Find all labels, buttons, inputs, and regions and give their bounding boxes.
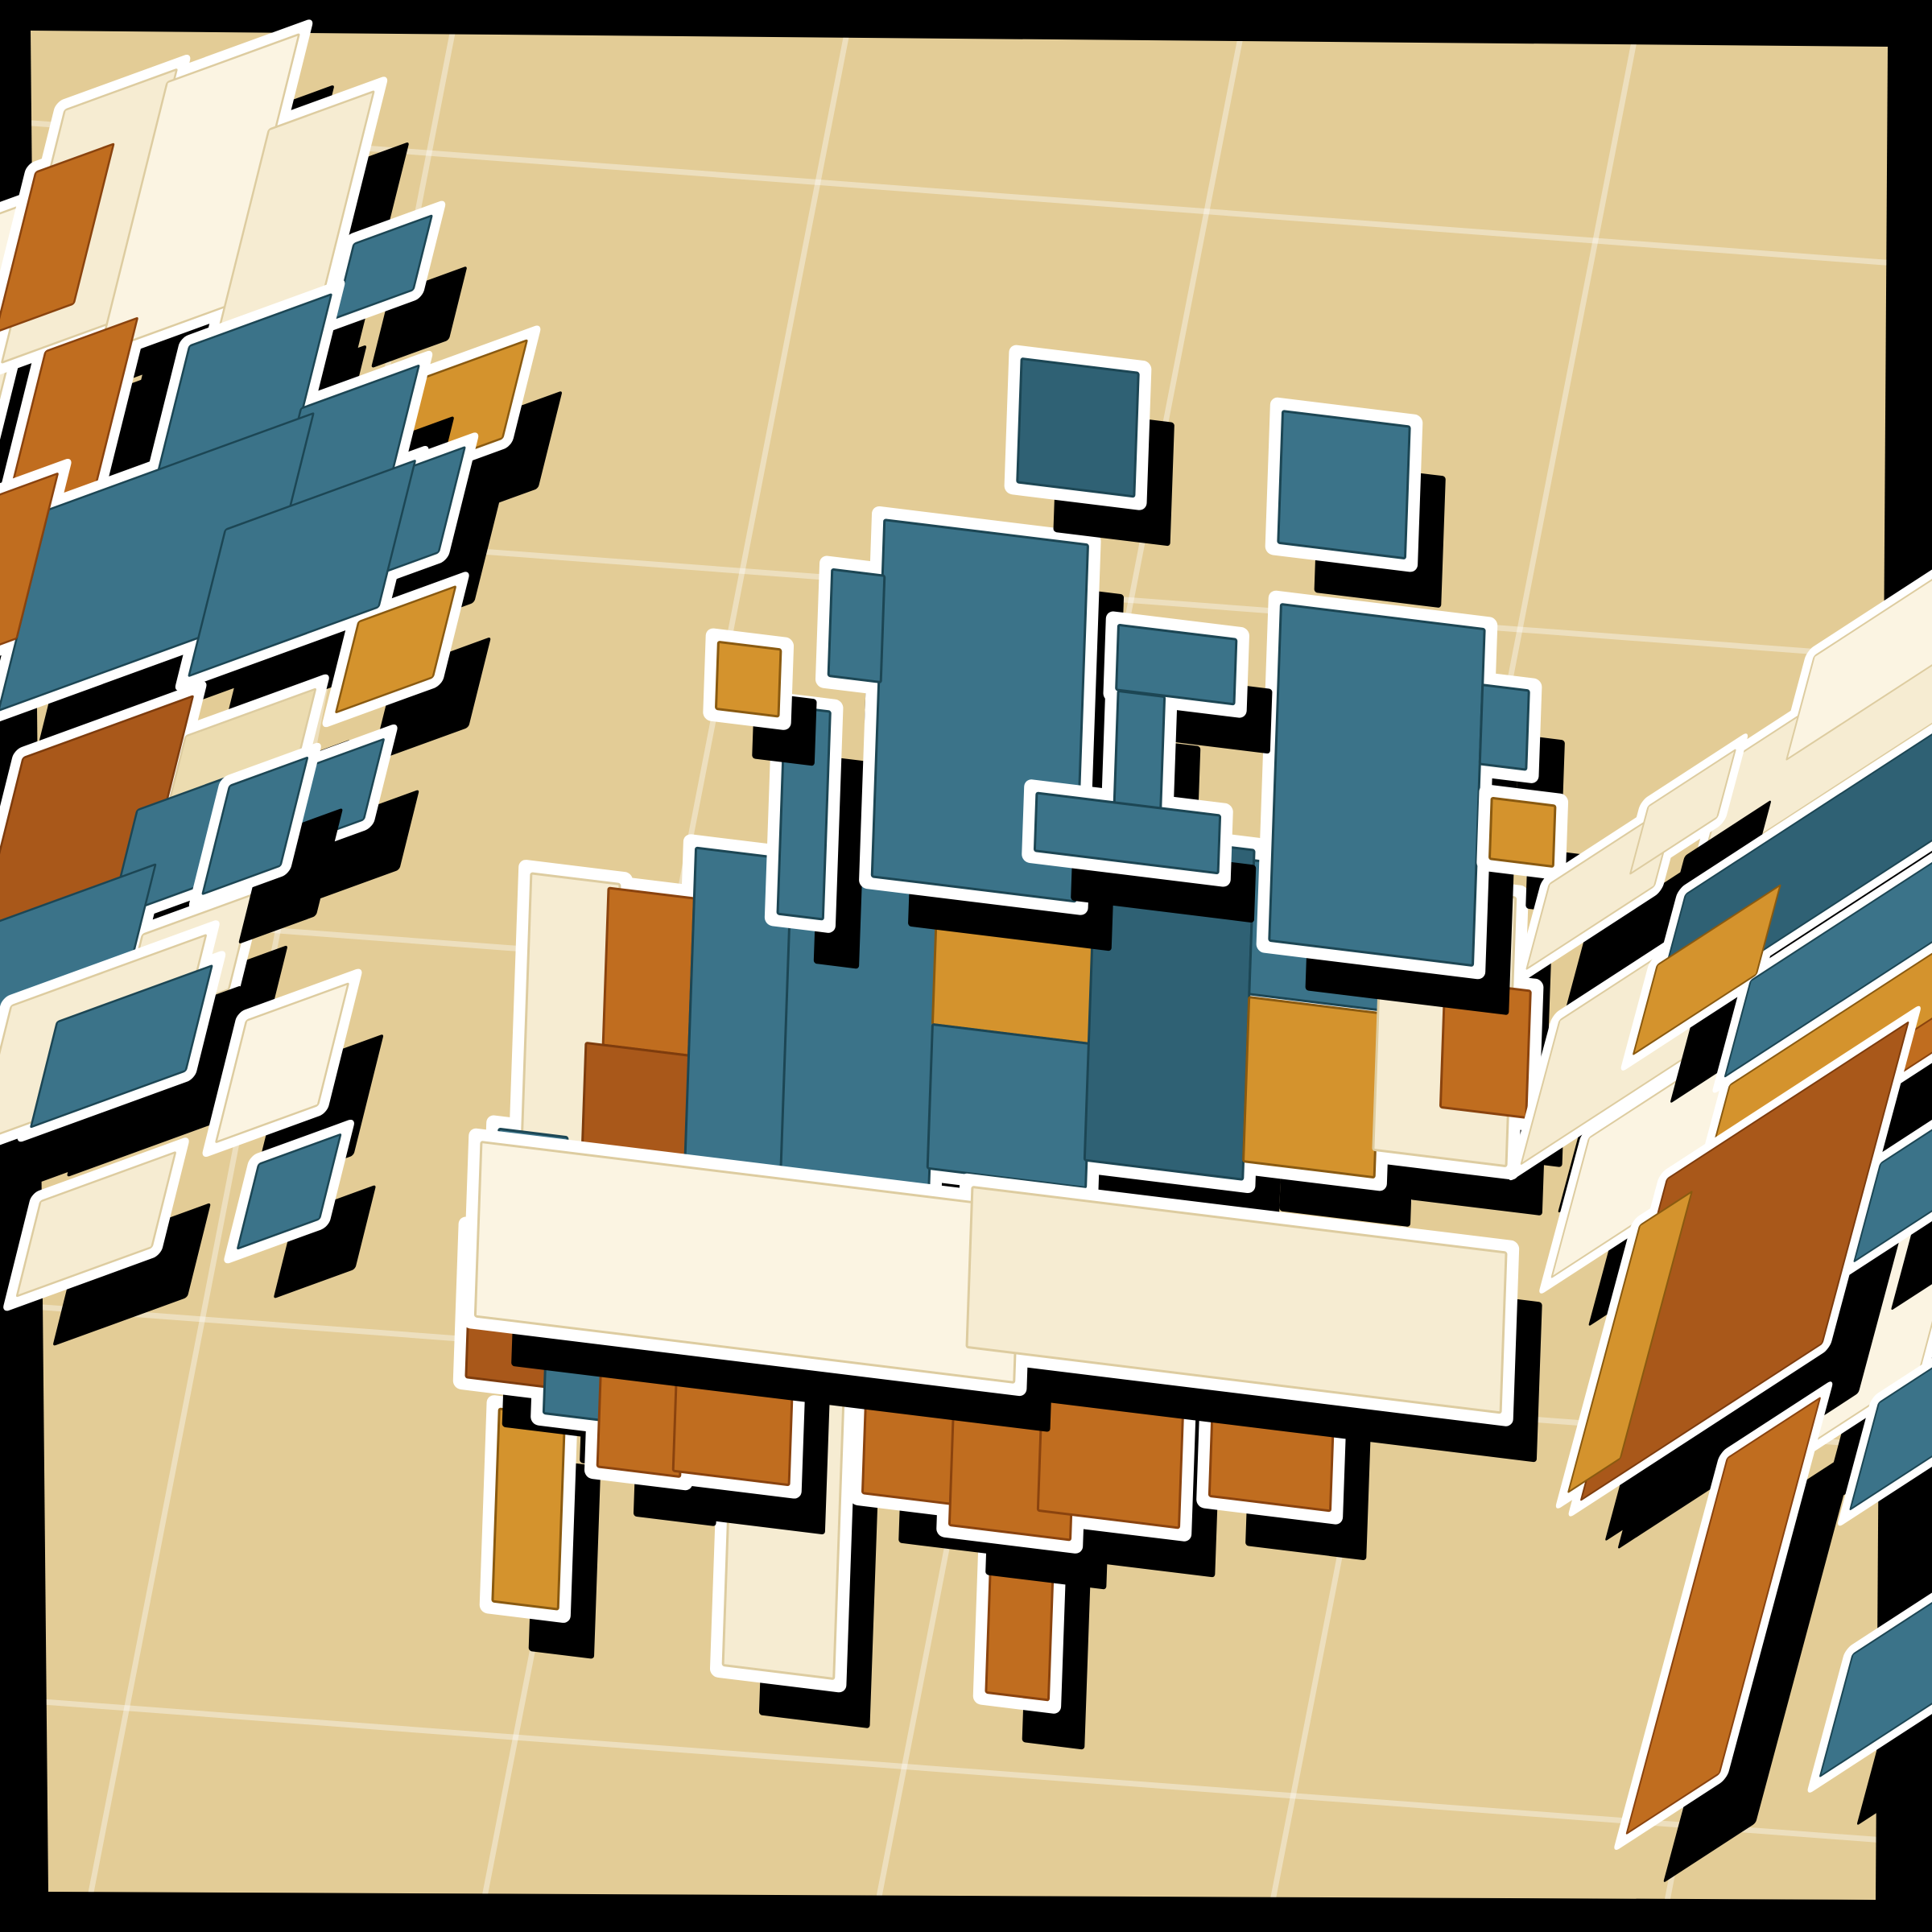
mosaic-cell-T	[1278, 411, 1410, 559]
mosaic-cell-U	[1018, 358, 1139, 496]
artwork-stage	[0, 0, 1932, 1932]
mosaic-cell-T	[1269, 605, 1484, 966]
mosaic-cell-G	[493, 1409, 565, 1609]
abstract-mosaic-artwork	[0, 0, 1932, 1932]
mosaic-cell-G	[716, 642, 780, 716]
mosaic-cell-G	[1244, 997, 1381, 1178]
mosaic-cell-S	[603, 888, 694, 1055]
mosaic-cell-T	[1480, 685, 1529, 770]
mosaic-cell-G	[1489, 798, 1554, 866]
mosaic-cell-T	[828, 569, 885, 682]
mosaic-cell-T	[927, 1025, 1091, 1188]
